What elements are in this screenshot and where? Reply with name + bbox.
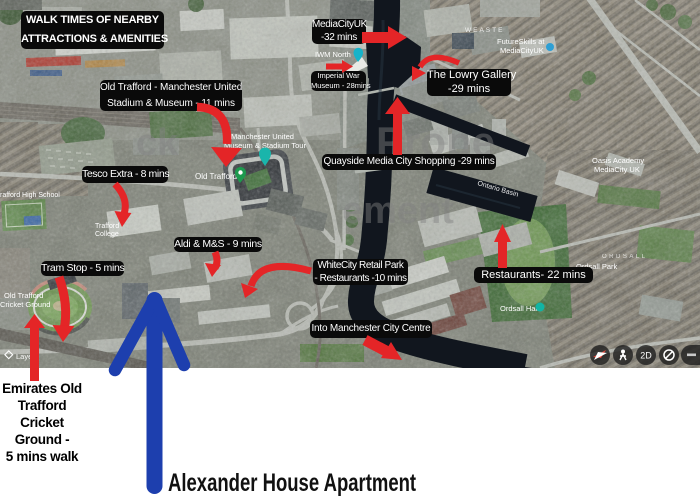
svg-text:MediaCityUK: MediaCityUK xyxy=(500,46,544,55)
svg-text:MediaCity UK: MediaCity UK xyxy=(594,165,640,174)
svg-text:College: College xyxy=(95,231,119,238)
svg-text:Ordsall Hall: Ordsall Hall xyxy=(500,304,539,313)
svg-text:WEASTE: WEASTE xyxy=(465,27,504,34)
svg-text:Cricket Ground: Cricket Ground xyxy=(0,300,50,309)
svg-text:Manchester United: Manchester United xyxy=(231,132,294,141)
svg-text:rafford High School: rafford High School xyxy=(0,192,60,199)
svg-text:IWM North: IWM North xyxy=(315,50,351,59)
svg-text:ORDSALL: ORDSALL xyxy=(602,254,648,260)
svg-text:Old Trafford: Old Trafford xyxy=(4,291,43,300)
svg-text:FutureSkills at: FutureSkills at xyxy=(497,37,545,46)
svg-text:Old Trafford: Old Trafford xyxy=(195,172,237,181)
svg-text:2D: 2D xyxy=(640,351,652,361)
svg-text:Layers: Layers xyxy=(16,352,39,361)
svg-text:Trafford: Trafford xyxy=(95,223,119,230)
svg-text:Oasis Academy: Oasis Academy xyxy=(592,156,644,165)
